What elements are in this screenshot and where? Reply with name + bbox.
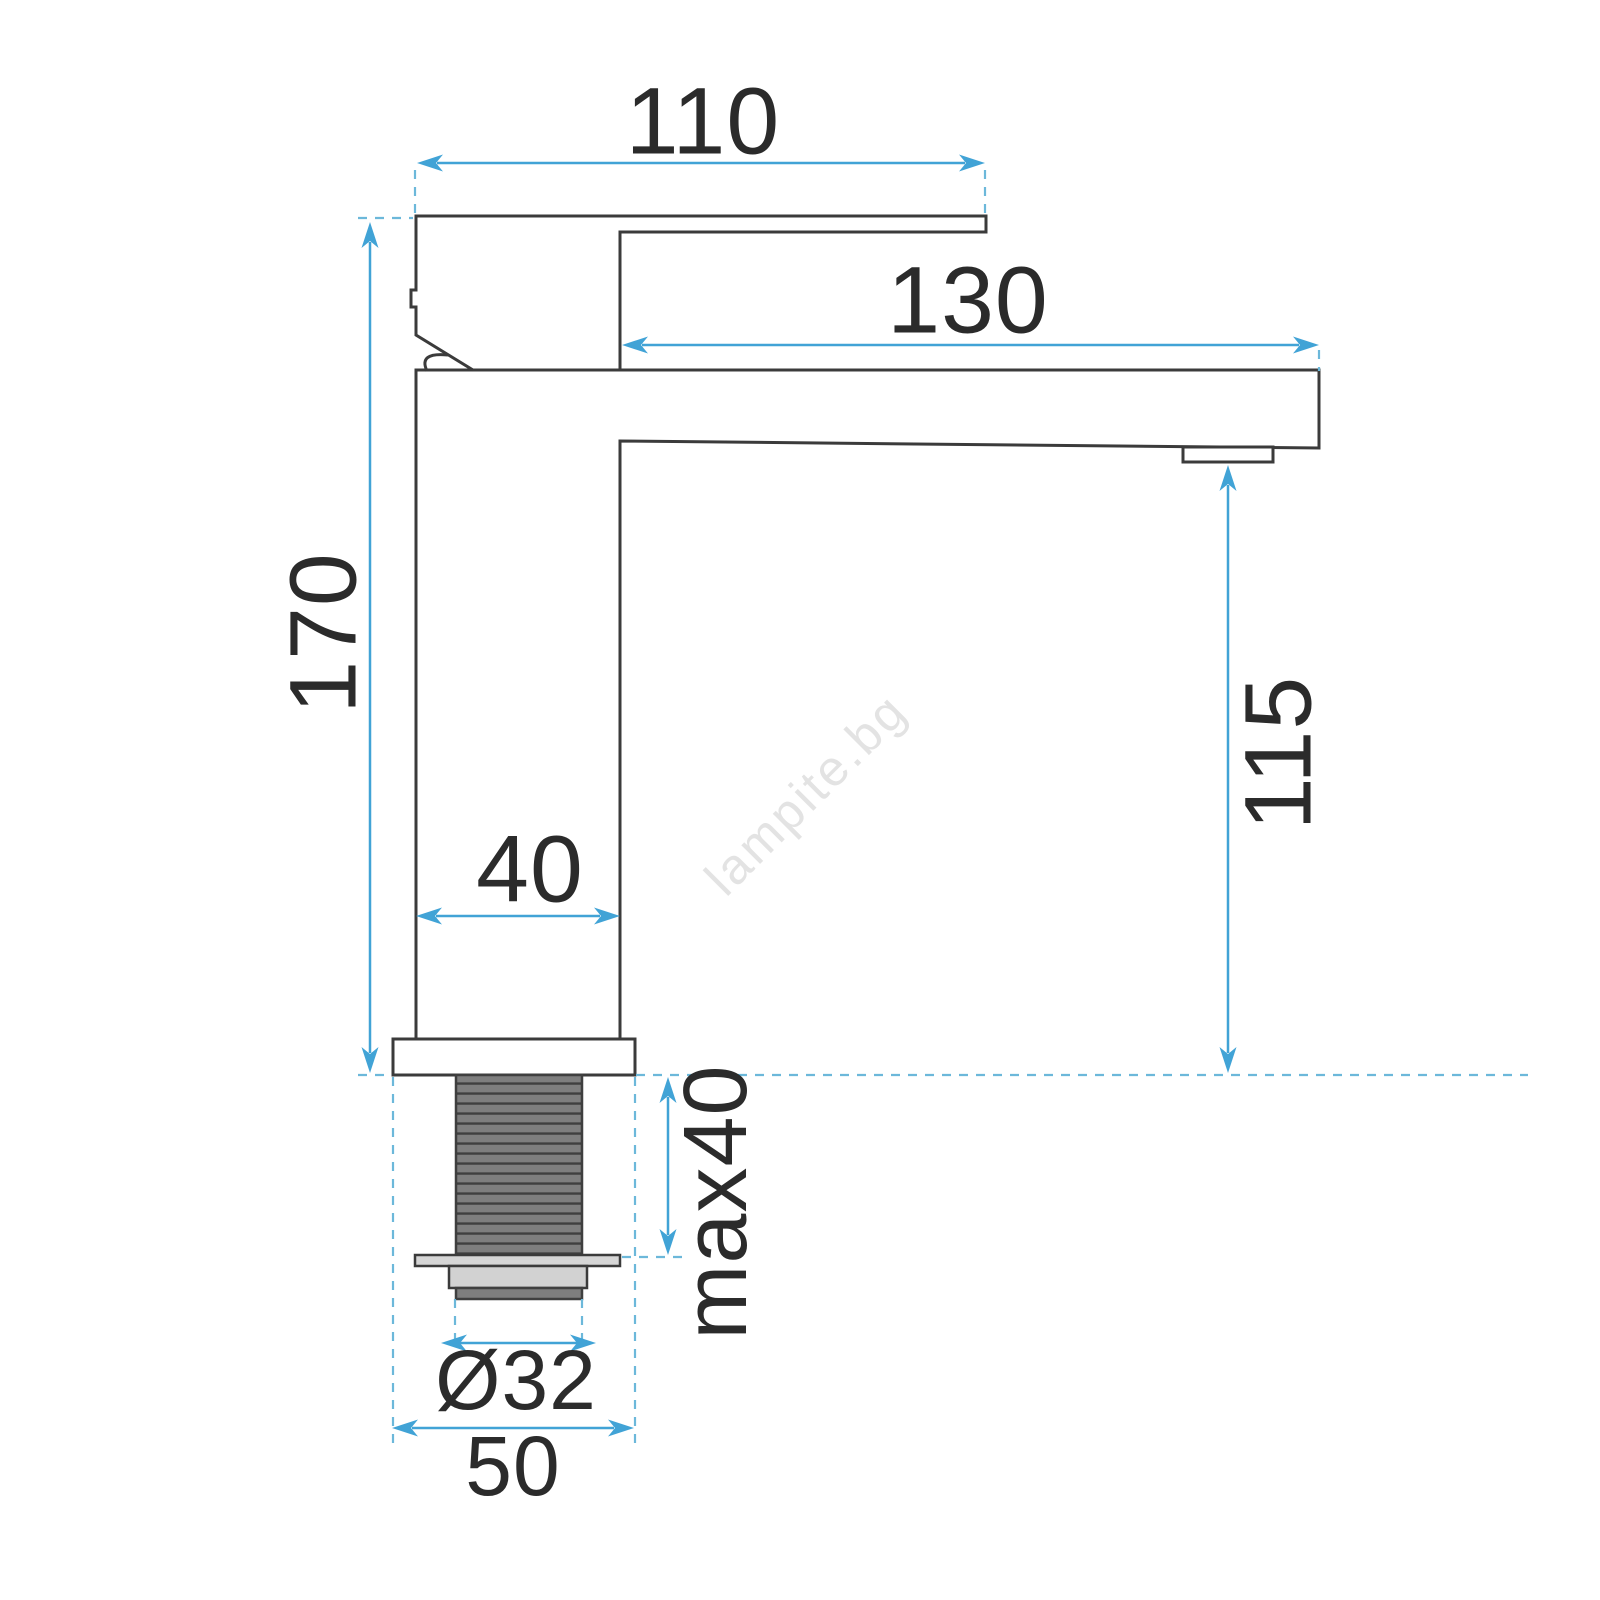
dimension-label-115: 115	[1232, 676, 1327, 830]
dimension-label-50: 50	[465, 1424, 560, 1508]
dimension-label-130: 130	[887, 254, 1049, 349]
mounting-nut	[449, 1266, 587, 1288]
shank-end	[456, 1288, 582, 1299]
base-plate	[393, 1039, 635, 1075]
dimension-label-max40: max40	[671, 1064, 761, 1339]
threaded-shank	[456, 1075, 582, 1255]
dimension-label-diameter-32: Ø32	[435, 1338, 597, 1422]
dimension-label-110: 110	[626, 75, 780, 170]
aerator	[1183, 447, 1273, 462]
dimension-label-170: 170	[277, 552, 372, 714]
technical-drawing-canvas: 110 130 170 115 40 max40 Ø32 50 lampite.…	[0, 0, 1600, 1600]
dimension-label-40: 40	[476, 823, 584, 918]
washer	[415, 1255, 620, 1266]
